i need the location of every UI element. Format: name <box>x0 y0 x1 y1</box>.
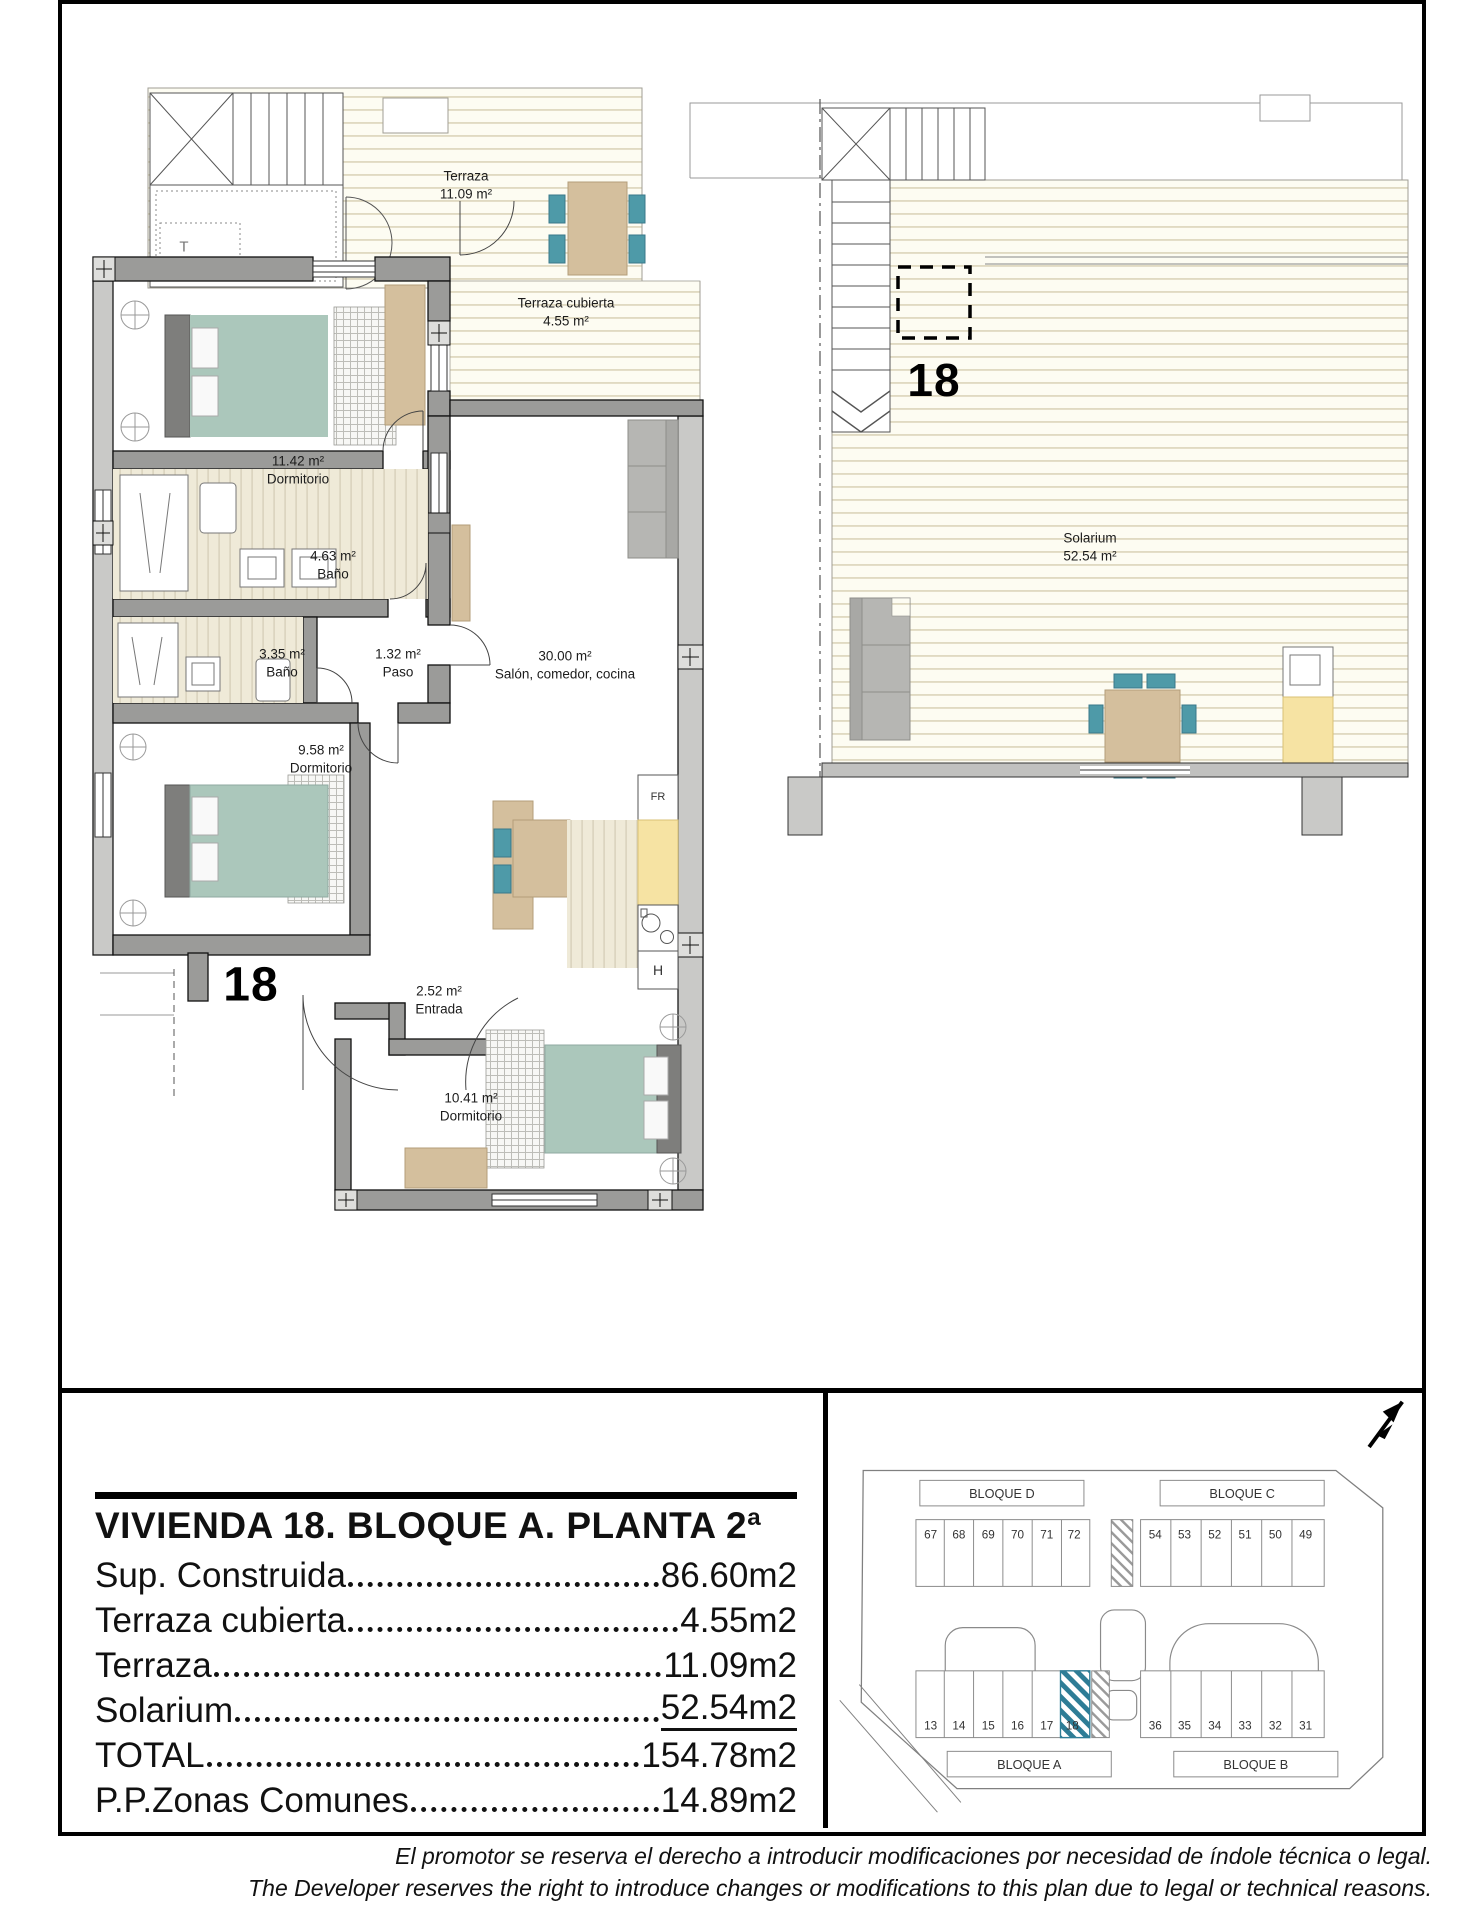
svg-text:35: 35 <box>1178 1720 1191 1733</box>
svg-text:54: 54 <box>1149 1528 1162 1541</box>
svg-text:71: 71 <box>1040 1528 1053 1541</box>
room-label-terraza: Terraza11.09 m² <box>440 167 492 202</box>
room-label-dormitorio2: 9.58 m²Dormitorio <box>290 741 352 776</box>
property-lines <box>100 969 174 1097</box>
site-plan: BLOQUE D BLOQUE C BLOQUE A BLOQUE B 67 6… <box>830 1392 1416 1824</box>
leader-dots <box>411 1807 659 1812</box>
solarium-counter <box>1283 647 1333 763</box>
svg-text:33: 33 <box>1239 1720 1252 1733</box>
leader-dots <box>348 1582 659 1587</box>
svg-text:32: 32 <box>1269 1720 1282 1733</box>
stair-t-marker: T <box>179 239 188 256</box>
leader-dots <box>214 1672 662 1677</box>
row-value-underlined: 52.54m2 <box>661 1688 797 1731</box>
svg-text:70: 70 <box>1011 1528 1024 1541</box>
svg-text:72: 72 <box>1068 1528 1081 1541</box>
row-value: 14.89m2 <box>661 1781 797 1821</box>
bedroom1-furniture <box>121 285 425 445</box>
row-label: Terraza <box>95 1646 212 1686</box>
svg-text:18: 18 <box>1066 1720 1079 1733</box>
site-plan-drawing: BLOQUE D BLOQUE C BLOQUE A BLOQUE B 67 6… <box>830 1392 1416 1824</box>
disclaimer-en: The Developer reserves the right to intr… <box>248 1872 1432 1904</box>
room-label-entrada: 2.52 m²Entrada <box>415 982 462 1017</box>
north-arrow-icon <box>1369 1402 1402 1447</box>
stair-strip-ab <box>1092 1671 1110 1738</box>
svg-text:67: 67 <box>924 1528 937 1541</box>
room-label-solarium: Solarium52.54 m² <box>1063 529 1116 564</box>
laundry-label: H <box>653 962 663 978</box>
summary-row: Terraza 11.09m2 <box>95 1641 797 1686</box>
room-label-salon: 30.00 m²Salón, comedor, cocina <box>495 647 635 682</box>
unit-number-solarium: 18 <box>907 353 960 407</box>
svg-text:14: 14 <box>952 1720 965 1733</box>
leader-dots <box>348 1627 678 1632</box>
block-b-label: BLOQUE B <box>1223 1757 1288 1772</box>
stair-strip-dc <box>1111 1520 1132 1587</box>
block-d-label: BLOQUE D <box>969 1486 1035 1501</box>
svg-text:36: 36 <box>1149 1720 1162 1733</box>
area-summary-table: VIVIENDA 18. BLOQUE A. PLANTA 2ª Sup. Co… <box>95 1492 797 1821</box>
summary-row: Sup. Construida 86.60m2 <box>95 1551 797 1596</box>
solarium-floorplan: 18 Solarium52.54 m² <box>650 85 1418 855</box>
svg-text:53: 53 <box>1178 1528 1191 1541</box>
summary-row: Solarium 52.54m2 <box>95 1686 797 1731</box>
apartment-floorplan: Terraza11.09 m² Terraza cubierta4.55 m² … <box>88 85 706 1215</box>
room-label-bano2: 3.35 m²Baño <box>259 645 305 680</box>
row-value: 4.55m2 <box>680 1601 797 1641</box>
leader-dots <box>207 1762 640 1767</box>
summary-row: Terraza cubierta 4.55m2 <box>95 1596 797 1641</box>
disclaimer-es: El promotor se reserva el derecho a intr… <box>248 1840 1432 1872</box>
panel-vertical-divider <box>823 1388 828 1828</box>
row-label: Sup. Construida <box>95 1556 346 1596</box>
svg-text:15: 15 <box>982 1720 995 1733</box>
svg-text:68: 68 <box>952 1528 965 1541</box>
roof-outline <box>690 95 1402 180</box>
block-a-label: BLOQUE A <box>997 1757 1062 1772</box>
solarium-bottom-wall <box>788 763 1408 835</box>
row-label: TOTAL <box>95 1736 205 1776</box>
row-value: 11.09m2 <box>663 1646 797 1686</box>
solarium-dining-set <box>1089 674 1196 778</box>
room-label-paso: 1.32 m²Paso <box>375 645 421 680</box>
solarium-floorplan-drawing <box>650 85 1418 855</box>
disclaimer: El promotor se reserva el derecho a intr… <box>248 1840 1432 1904</box>
summary-row: P.P.Zonas Comunes 14.89m2 <box>95 1776 797 1821</box>
svg-text:31: 31 <box>1299 1720 1312 1733</box>
row-label: P.P.Zonas Comunes <box>95 1781 409 1821</box>
summary-title: VIVIENDA 18. BLOQUE A. PLANTA 2ª <box>95 1505 797 1547</box>
leader-dots <box>235 1717 659 1722</box>
room-label-bano1: 4.63 m²Baño <box>310 547 356 582</box>
svg-text:16: 16 <box>1011 1720 1024 1733</box>
svg-text:69: 69 <box>982 1528 995 1541</box>
row-value: 86.60m2 <box>661 1556 797 1596</box>
svg-text:52: 52 <box>1208 1528 1221 1541</box>
svg-text:13: 13 <box>924 1720 937 1733</box>
solarium-sofa <box>850 598 910 740</box>
title-rule <box>95 1492 797 1499</box>
room-label-dormitorio3: 10.41 m²Dormitorio <box>440 1089 502 1124</box>
svg-text:51: 51 <box>1239 1528 1252 1541</box>
row-label: Solarium <box>95 1691 233 1731</box>
row-value: 154.78m2 <box>641 1736 797 1776</box>
unit-number-apartment: 18 <box>223 958 278 1013</box>
row-label: Terraza cubierta <box>95 1601 346 1641</box>
room-label-terraza-cubierta: Terraza cubierta4.55 m² <box>518 294 615 329</box>
room-label-dormitorio1: 11.42 m²Dormitorio <box>267 452 329 487</box>
block-c-label: BLOQUE C <box>1209 1486 1275 1501</box>
svg-text:50: 50 <box>1269 1528 1282 1541</box>
svg-text:17: 17 <box>1040 1720 1053 1733</box>
svg-text:34: 34 <box>1208 1720 1221 1733</box>
summary-row: TOTAL 154.78m2 <box>95 1731 797 1776</box>
svg-text:49: 49 <box>1299 1528 1312 1541</box>
